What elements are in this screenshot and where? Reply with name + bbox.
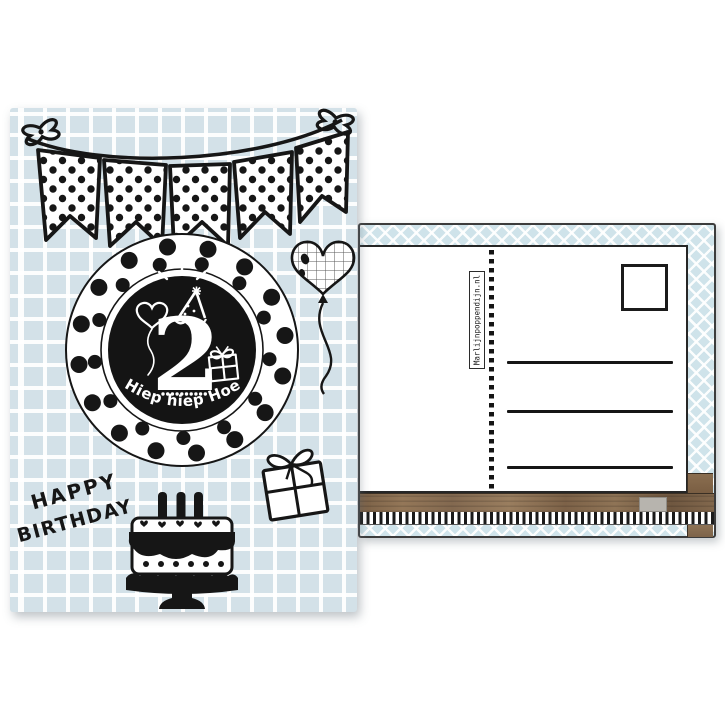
product-photo: Marlijnpoppendijn.nl	[0, 0, 725, 725]
postcard-front: 2 Hiep hiep Hoera	[10, 108, 357, 612]
polka-dot	[195, 257, 209, 271]
polka-dot	[121, 252, 138, 269]
polka-dot	[176, 431, 190, 445]
heart-balloon-grid-icon	[292, 242, 354, 394]
address-line	[507, 361, 673, 364]
polka-dot	[200, 241, 217, 258]
fringe-strip	[360, 512, 714, 525]
polka-dot	[73, 316, 90, 333]
postcard-back: Marlijnpoppendijn.nl	[358, 223, 716, 538]
divider-line	[489, 250, 494, 490]
polka-dot	[111, 425, 128, 442]
polka-dot	[153, 258, 167, 272]
address-line	[507, 466, 673, 469]
pennant-flag	[38, 150, 100, 240]
polka-dot	[159, 239, 176, 256]
polka-dot	[226, 431, 243, 448]
polka-dot	[263, 289, 280, 306]
cake-stand	[159, 592, 205, 609]
greeting-text: HAPPY BIRTHDAY	[10, 466, 135, 547]
polka-dot	[263, 352, 277, 366]
bunting-banner	[22, 109, 354, 248]
brand-label: Marlijnpoppendijn.nl	[469, 271, 485, 369]
birthday-cake-icon	[126, 492, 238, 609]
polka-dot	[277, 327, 294, 344]
polka-dot	[274, 368, 291, 385]
polka-dot	[88, 355, 102, 369]
polka-dot	[84, 394, 101, 411]
address-line	[507, 410, 673, 413]
brand-vertical-text: Marlijnpoppendijn.nl	[473, 275, 482, 365]
front-card-artwork: 2 Hiep hiep Hoera	[10, 108, 357, 612]
cake-base-band	[126, 573, 238, 595]
polka-dot	[257, 404, 274, 421]
stamp-box	[621, 264, 668, 311]
pennant-flag	[104, 160, 166, 246]
writing-panel: Marlijnpoppendijn.nl	[360, 245, 688, 493]
polka-dot	[90, 279, 107, 296]
gray-chip	[639, 497, 667, 512]
polka-dot	[71, 356, 88, 373]
pennant-flag	[296, 132, 348, 222]
polka-dot	[236, 258, 253, 275]
polka-dot	[148, 442, 165, 459]
pennant-flag	[234, 152, 292, 238]
polka-dot	[188, 445, 205, 462]
gift-box-icon	[261, 448, 328, 520]
